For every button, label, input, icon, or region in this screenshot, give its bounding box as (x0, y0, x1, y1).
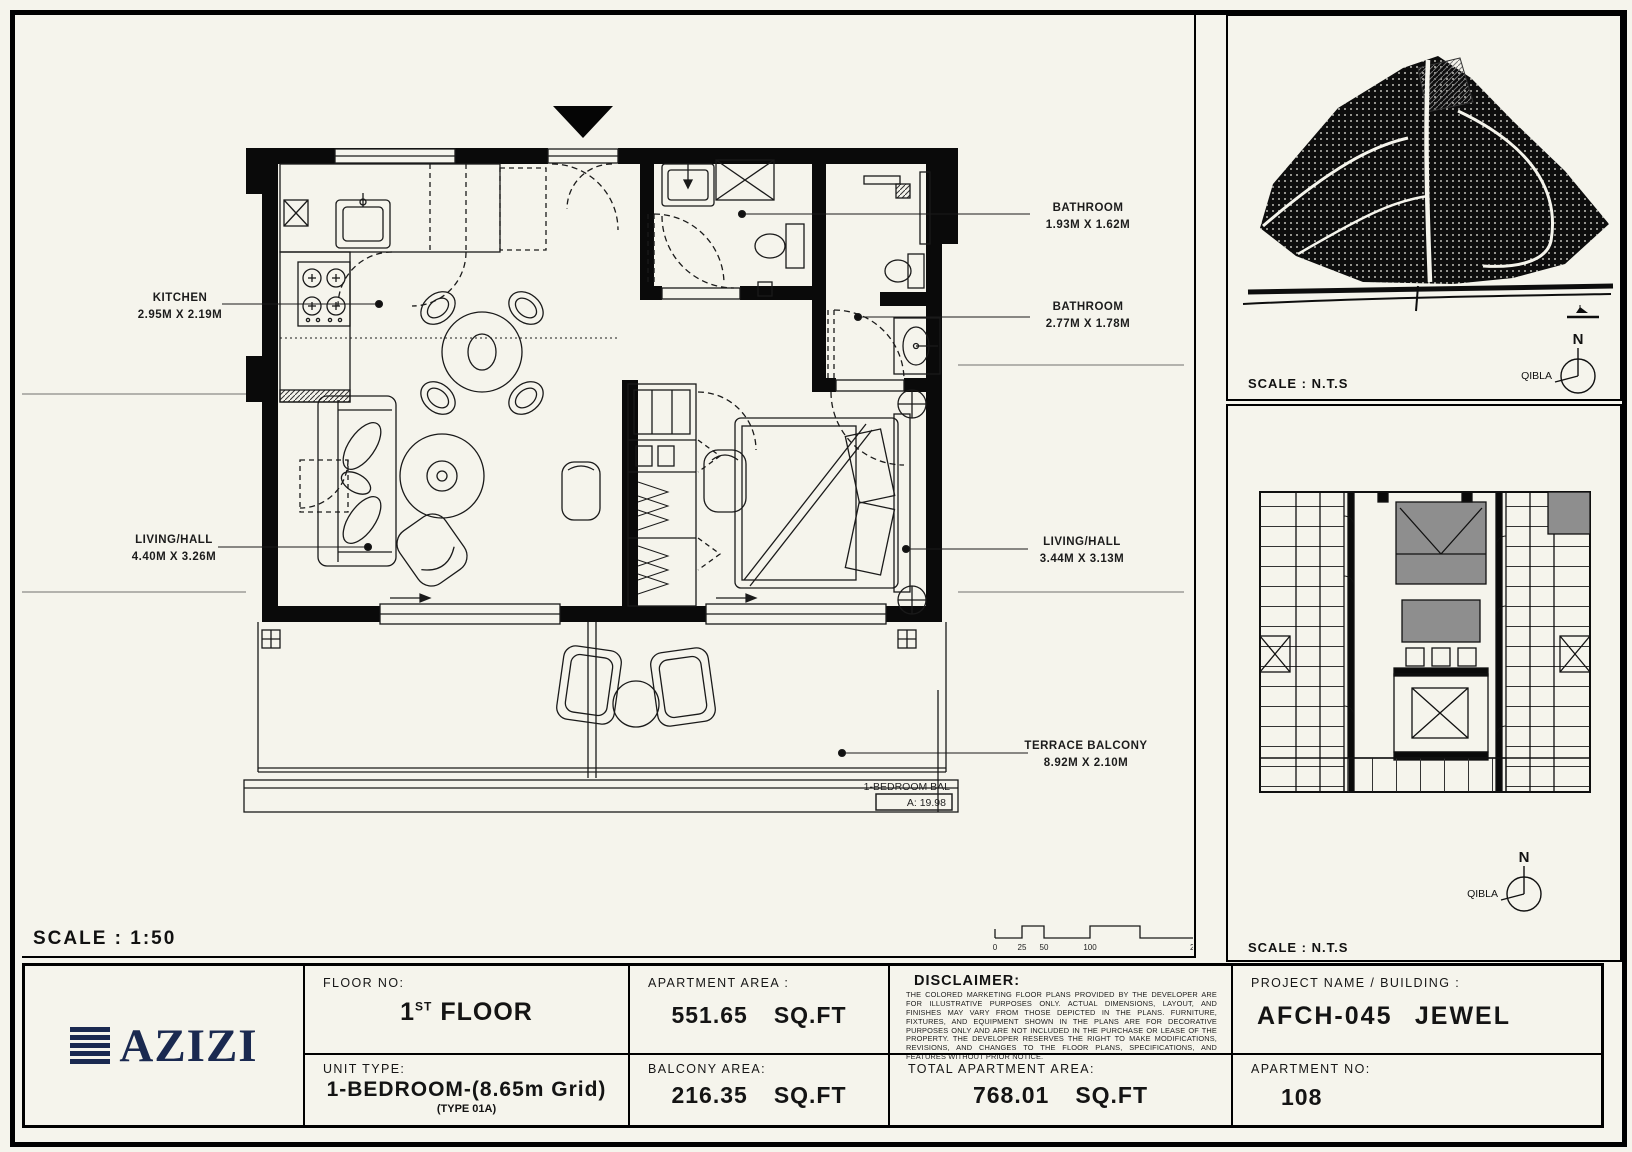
project-code: AFCH-045 (1257, 1002, 1392, 1031)
svg-text:BATHROOM: BATHROOM (1053, 202, 1124, 214)
apartment-area-unit: SQ.FT (774, 1002, 847, 1029)
sink-icon (662, 164, 714, 206)
floor-plan-drawing: 1-BEDROOM BAL A: 19.98 KITCHEN 2.95M X 2… (18, 18, 1193, 958)
highlighted-unit (1548, 492, 1590, 534)
apartment-no-value: 108 (1233, 1084, 1601, 1111)
site-plan-panel: SCALE : N.T.S N QIBLA (1226, 14, 1622, 401)
compass-icon: N QIBLA (1467, 849, 1541, 911)
logo-cell: AZIZI (25, 966, 303, 1125)
svg-text:8.92M X 2.10M: 8.92M X 2.10M (1044, 757, 1128, 769)
floor-no-value: 1ST FLOOR (305, 998, 628, 1027)
total-area-label: TOTAL APARTMENT AREA: (890, 1055, 1231, 1076)
apartment-area-value: 551.65 (671, 1002, 747, 1029)
floor-no-label: FLOOR NO: (305, 966, 628, 990)
balcony-chair (649, 646, 717, 727)
svg-text:LIVING/HALL: LIVING/HALL (1043, 536, 1121, 548)
svg-text:TERRACE BALCONY: TERRACE BALCONY (1024, 740, 1147, 752)
balcony-chair (555, 644, 623, 725)
bedroom-chair (704, 450, 746, 512)
balcony-table (613, 681, 659, 727)
balcony: 1-BEDROOM BAL A: 19.98 (244, 622, 958, 812)
svg-text:3.44M X 3.13M: 3.44M X 3.13M (1040, 553, 1124, 565)
dining-chair (414, 375, 461, 421)
svg-text:N: N (1519, 849, 1530, 866)
svg-text:N: N (1573, 331, 1584, 348)
compass-icon: N QIBLA (1521, 331, 1595, 393)
site-plan-drawing: SCALE : N.T.S N QIBLA (1228, 16, 1620, 399)
dining-chair (502, 285, 549, 331)
wardrobe (628, 384, 756, 606)
accent-chair (391, 508, 474, 593)
svg-text:QIBLA: QIBLA (1521, 370, 1552, 382)
unit-type-value: 1-BEDROOM-(8.65m Grid) (305, 1078, 628, 1102)
dining-chair (502, 375, 549, 421)
rug (400, 434, 484, 518)
svg-text:LIVING/HALL: LIVING/HALL (135, 534, 213, 546)
disclaimer-text: THE COLORED MARKETING FLOOR PLANS PROVID… (890, 989, 1231, 1062)
key-scale-label: SCALE : N.T.S (1248, 940, 1348, 955)
svg-text:A: 19.98: A: 19.98 (907, 797, 946, 809)
unit-type-label: UNIT TYPE: (305, 1055, 628, 1076)
svg-text:2.77M X 1.78M: 2.77M X 1.78M (1046, 318, 1130, 330)
key-plan-drawing: SCALE : N.T.S N QIBLA (1228, 406, 1620, 960)
slide-arrow-icon (390, 594, 756, 602)
toilet-icon (885, 254, 924, 288)
unit-type-subvalue: (TYPE 01A) (305, 1103, 628, 1115)
room-labels: KITCHEN 2.95M X 2.19M LIVING/HALL 4.40M … (132, 202, 1148, 769)
stove-icon (298, 262, 350, 326)
svg-text:1-BEDROOM BAL: 1-BEDROOM BAL (864, 781, 951, 793)
svg-text:4.40M X 3.26M: 4.40M X 3.26M (132, 551, 216, 563)
site-plan-shape (1243, 56, 1613, 317)
scale-bar: 0 25 50 100 250m (993, 926, 1193, 952)
scale-label: SCALE : 1:50 (33, 928, 176, 949)
total-area-cell: TOTAL APARTMENT AREA: 768.01SQ.FT (888, 1053, 1231, 1125)
main-right-divider (1194, 15, 1196, 956)
svg-text:2.95M X 2.19M: 2.95M X 2.19M (138, 309, 222, 321)
boat-icon (1567, 305, 1599, 317)
dining-chair (414, 285, 461, 331)
project-building: JEWEL (1415, 1002, 1511, 1031)
project-name-cell: PROJECT NAME / BUILDING : AFCH-045JEWEL (1231, 966, 1601, 1053)
disclaimer-label: DISCLAIMER: (890, 966, 1231, 989)
bathroom-2 (828, 172, 940, 465)
site-scale-label: SCALE : N.T.S (1248, 376, 1348, 391)
apartment-area-cell: APARTMENT AREA : 551.65SQ.FT (628, 966, 888, 1053)
azizi-logo-text: AZIZI (119, 1019, 257, 1073)
svg-text:25: 25 (1018, 943, 1027, 952)
key-plan-panel: SCALE : N.T.S N QIBLA (1226, 404, 1622, 962)
apartment-area-label: APARTMENT AREA : (630, 966, 888, 990)
floor-no-cell: FLOOR NO: 1ST FLOOR (303, 966, 628, 1053)
svg-text:50: 50 (1040, 943, 1049, 952)
balcony-area-tag: 1-BEDROOM BAL A: 19.98 (864, 781, 952, 810)
kitchen (280, 164, 620, 512)
svg-text:100: 100 (1083, 943, 1097, 952)
svg-text:250m: 250m (1190, 943, 1193, 952)
svg-text:QIBLA: QIBLA (1467, 888, 1498, 900)
bathroom-1 (648, 160, 804, 299)
apartment-no-cell: APARTMENT NO: 108 (1231, 1053, 1601, 1125)
svg-text:0: 0 (993, 943, 998, 952)
total-area-unit: SQ.FT (1075, 1082, 1148, 1109)
floorplan-sheet: 1-BEDROOM BAL A: 19.98 KITCHEN 2.95M X 2… (0, 0, 1632, 1152)
svg-text:BATHROOM: BATHROOM (1053, 301, 1124, 313)
balcony-vent-icon (262, 630, 916, 648)
dining-table (414, 285, 549, 421)
windows-and-doors (335, 149, 886, 624)
lamp-icon (898, 586, 926, 614)
side-chair (562, 462, 600, 520)
sofa (318, 396, 396, 566)
svg-text:KITCHEN: KITCHEN (153, 292, 208, 304)
apartment-no-label: APARTMENT NO: (1233, 1055, 1601, 1076)
title-block: AZIZI FLOOR NO: 1ST FLOOR UNIT TYPE: 1-B… (22, 963, 1604, 1128)
lamp-icon (898, 390, 926, 418)
balcony-area-unit: SQ.FT (774, 1082, 847, 1109)
bed (735, 390, 926, 614)
building-footprint (1260, 492, 1590, 792)
disclaimer-cell: DISCLAIMER: THE COLORED MARKETING FLOOR … (888, 966, 1231, 1053)
azizi-logo-icon (70, 1027, 110, 1064)
project-name-label: PROJECT NAME / BUILDING : (1233, 966, 1601, 990)
balcony-area-label: BALCONY AREA: (630, 1055, 888, 1076)
balcony-area-cell: BALCONY AREA: 216.35SQ.FT (628, 1053, 888, 1125)
balcony-area-value: 216.35 (671, 1082, 747, 1109)
total-area-value: 768.01 (973, 1082, 1049, 1109)
svg-text:1.93M X 1.62M: 1.93M X 1.62M (1046, 219, 1130, 231)
unit-type-cell: UNIT TYPE: 1-BEDROOM-(8.65m Grid) (TYPE … (303, 1053, 628, 1125)
toilet-icon (755, 224, 804, 268)
entrance-arrow-icon (553, 106, 613, 138)
